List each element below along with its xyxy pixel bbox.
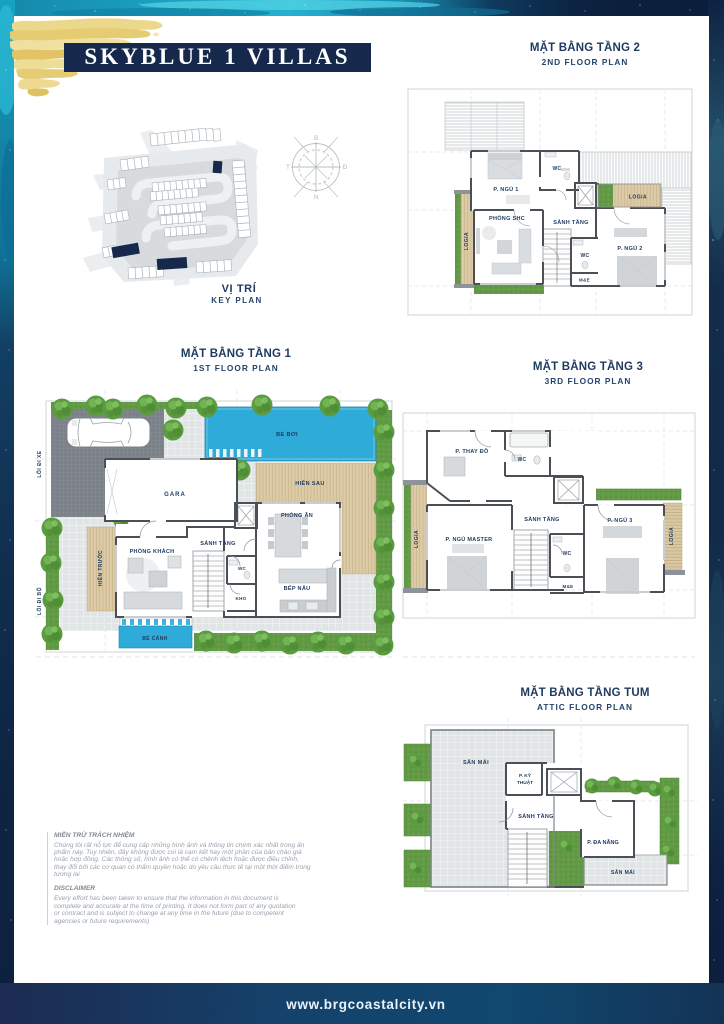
svg-text:SẢNH TẦNG: SẢNH TẦNG: [524, 516, 559, 523]
svg-text:LOGIA: LOGIA: [629, 195, 647, 201]
svg-text:WC: WC: [518, 457, 527, 463]
svg-text:SẢNH TẦNG: SẢNH TẦNG: [553, 219, 588, 226]
svg-text:P. NGỦ MASTER: P. NGỦ MASTER: [446, 536, 493, 543]
svg-text:B: B: [314, 136, 318, 142]
svg-text:M&E: M&E: [563, 584, 574, 589]
svg-text:P. NGỦ 1: P. NGỦ 1: [493, 186, 518, 193]
svg-text:HIÊN TRƯỚC: HIÊN TRƯỚC: [96, 550, 104, 586]
svg-text:WC: WC: [238, 566, 247, 571]
svg-text:SẢNH TẦNG: SẢNH TẦNG: [200, 540, 235, 547]
svg-text:LỐI ĐI BỘ: LỐI ĐI BỘ: [35, 587, 43, 615]
svg-text:KHO: KHO: [236, 596, 247, 601]
svg-text:LOGIA: LOGIA: [669, 527, 675, 545]
svg-text:LOGIA: LOGIA: [464, 232, 470, 250]
svg-text:PHÒNG KHÁCH: PHÒNG KHÁCH: [130, 547, 175, 555]
svg-text:WC: WC: [553, 166, 562, 172]
svg-text:M&E: M&E: [579, 278, 590, 283]
svg-text:WC: WC: [581, 253, 590, 259]
svg-text:HIÊN SAU: HIÊN SAU: [295, 479, 324, 487]
svg-text:BỂ BƠI: BỂ BƠI: [276, 431, 298, 438]
svg-text:BỂ CẢNH: BỂ CẢNH: [142, 635, 168, 642]
svg-text:PHÒNG ĂN: PHÒNG ĂN: [281, 511, 313, 519]
svg-text:KEY PLAN: KEY PLAN: [211, 296, 263, 305]
svg-text:Đ: Đ: [343, 165, 348, 171]
svg-text:P. KỸ: P. KỸ: [519, 772, 532, 779]
svg-text:THUẬT: THUẬT: [517, 779, 533, 786]
svg-text:LOGIA: LOGIA: [414, 530, 420, 548]
svg-text:SÂN MÁI: SÂN MÁI: [611, 869, 635, 876]
svg-text:SẢNH TẦNG: SẢNH TẦNG: [518, 813, 553, 820]
svg-text:WC: WC: [563, 551, 572, 557]
svg-text:PHÒNG SHC: PHÒNG SHC: [489, 214, 525, 222]
svg-text:P. THAY ĐỒ: P. THAY ĐỒ: [455, 448, 489, 455]
svg-text:SÂN MÁI: SÂN MÁI: [463, 759, 489, 766]
svg-text:P. ĐA NĂNG: P. ĐA NĂNG: [587, 839, 618, 846]
svg-text:T: T: [286, 165, 290, 171]
svg-text:VỊ TRÍ: VỊ TRÍ: [222, 282, 257, 295]
svg-text:LỐI ĐI XE: LỐI ĐI XE: [36, 450, 43, 477]
svg-text:BẾP NẤU: BẾP NẤU: [284, 585, 311, 592]
svg-text:N: N: [314, 195, 318, 201]
svg-text:GARA: GARA: [164, 492, 186, 498]
svg-text:P. NGỦ 2: P. NGỦ 2: [617, 245, 642, 252]
svg-text:P. NGỦ 3: P. NGỦ 3: [607, 517, 632, 524]
